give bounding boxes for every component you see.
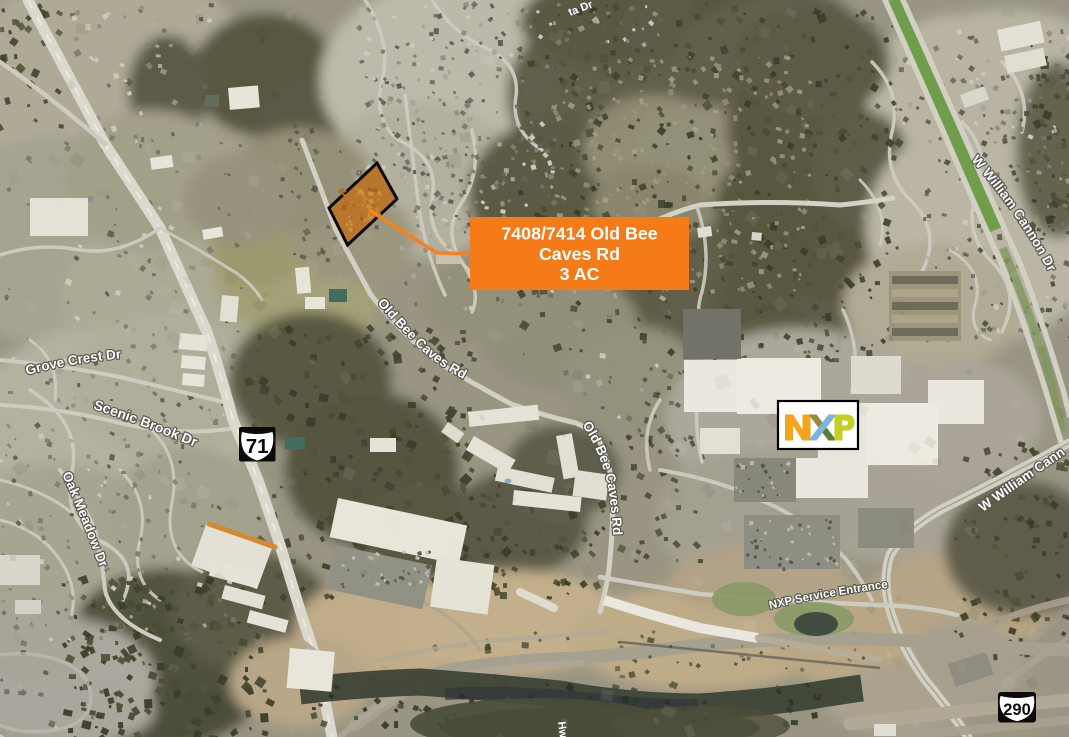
svg-text:7408/7414 Old Bee: 7408/7414 Old Bee [501, 224, 657, 244]
svg-text:3 AC: 3 AC [560, 264, 600, 284]
svg-text:Hw: Hw [555, 721, 569, 737]
svg-text:71: 71 [246, 435, 269, 458]
svg-text:290: 290 [1003, 701, 1031, 719]
svg-text:Caves Rd: Caves Rd [539, 244, 620, 264]
